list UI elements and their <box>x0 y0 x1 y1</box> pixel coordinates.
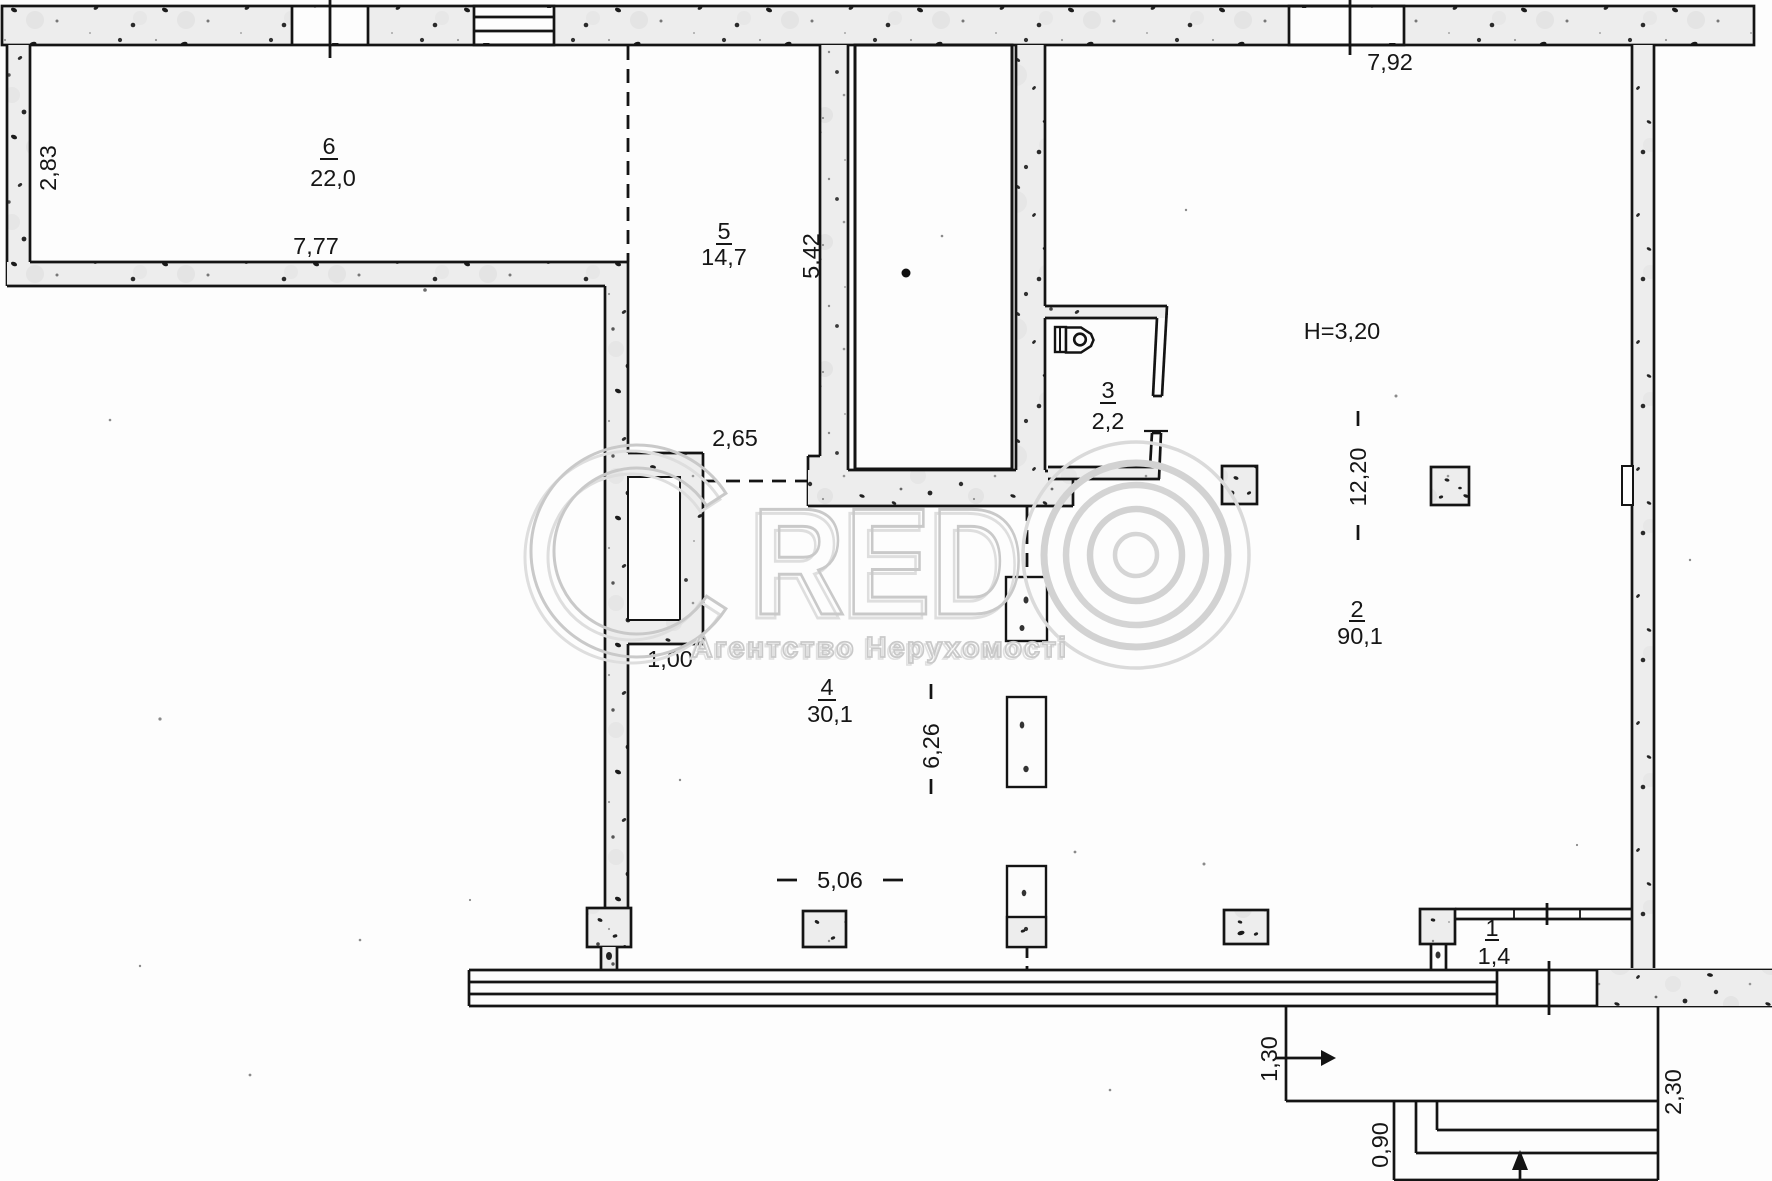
svg-text:2,30: 2,30 <box>1660 1069 1686 1115</box>
svg-text:2,65: 2,65 <box>712 425 758 451</box>
svg-text:RED: RED <box>752 477 1024 647</box>
svg-text:2,2: 2,2 <box>1092 408 1125 434</box>
svg-text:6: 6 <box>322 133 335 159</box>
svg-text:Агентство Нерухомості: Агентство Нерухомості <box>692 632 1068 664</box>
svg-text:22,0: 22,0 <box>310 165 356 191</box>
svg-text:7,92: 7,92 <box>1367 49 1413 75</box>
svg-text:14,7: 14,7 <box>701 244 747 270</box>
svg-text:1,4: 1,4 <box>1478 943 1511 969</box>
svg-text:5: 5 <box>717 218 730 244</box>
svg-text:2,83: 2,83 <box>35 145 61 191</box>
svg-text:6,26: 6,26 <box>918 723 944 769</box>
svg-text:4: 4 <box>820 674 833 700</box>
svg-text:1: 1 <box>1485 915 1498 941</box>
svg-text:0,90: 0,90 <box>1367 1122 1393 1168</box>
svg-text:90,1: 90,1 <box>1337 623 1383 649</box>
svg-text:12,20: 12,20 <box>1345 448 1371 507</box>
svg-text:H=3,20: H=3,20 <box>1304 318 1380 344</box>
svg-text:30,1: 30,1 <box>807 701 853 727</box>
svg-text:2: 2 <box>1350 596 1363 622</box>
svg-text:1,30: 1,30 <box>1256 1036 1282 1082</box>
svg-text:5,06: 5,06 <box>817 867 863 893</box>
svg-text:3: 3 <box>1101 377 1114 403</box>
svg-text:7,77: 7,77 <box>293 233 339 259</box>
